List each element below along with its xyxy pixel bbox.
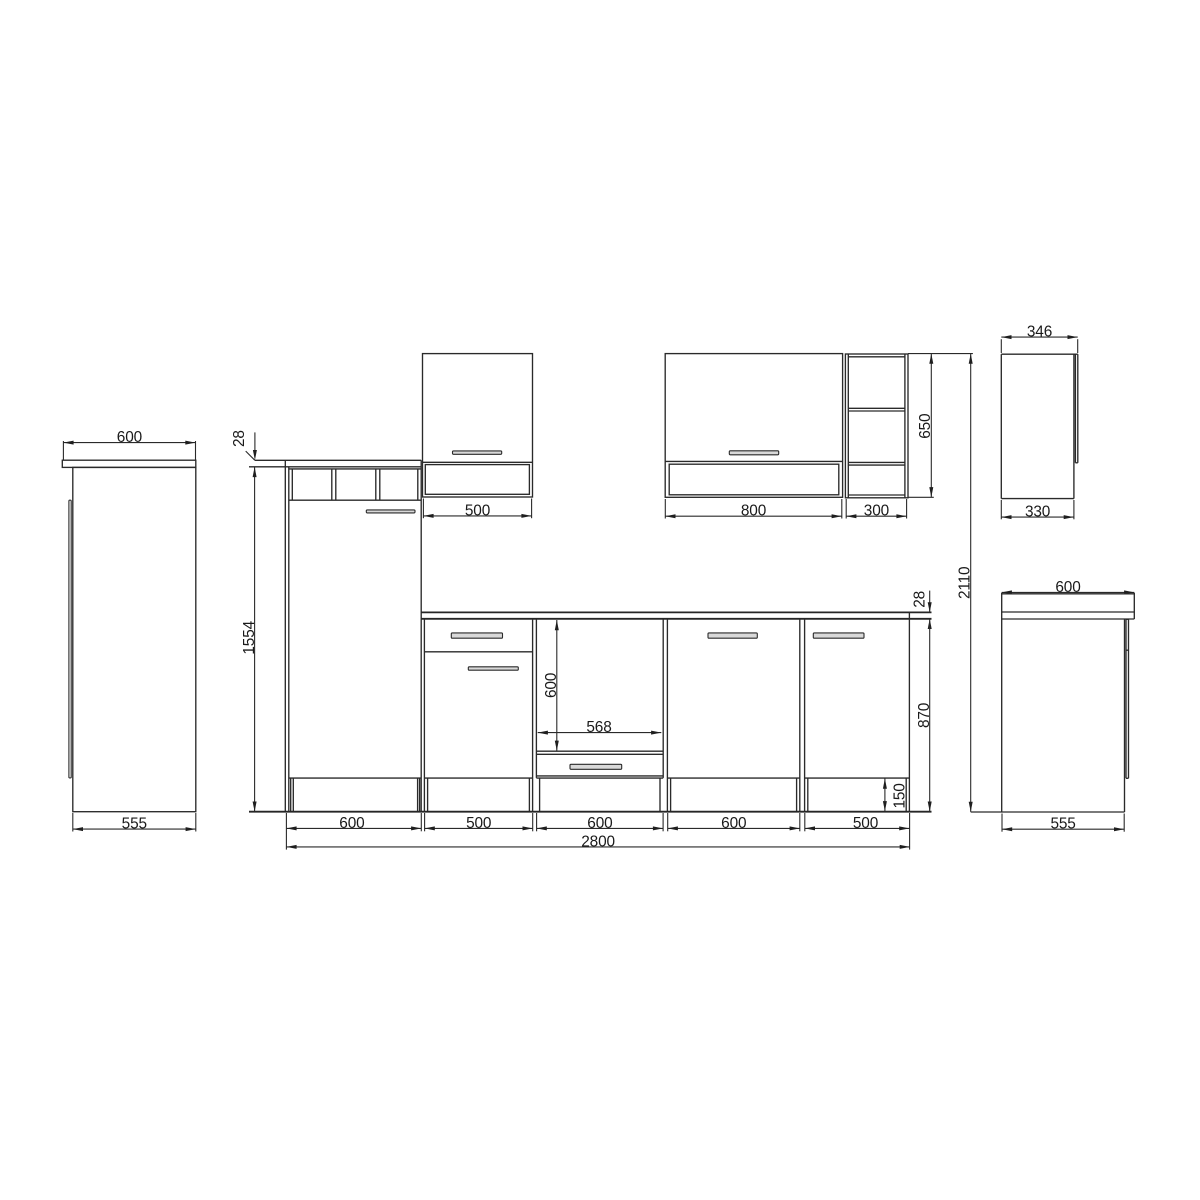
svg-text:568: 568 bbox=[586, 719, 611, 736]
svg-text:1554: 1554 bbox=[241, 620, 258, 654]
svg-text:2800: 2800 bbox=[581, 833, 615, 850]
svg-text:300: 300 bbox=[864, 503, 889, 520]
svg-text:346: 346 bbox=[1027, 324, 1052, 341]
svg-text:500: 500 bbox=[465, 502, 490, 519]
svg-text:870: 870 bbox=[916, 703, 933, 728]
svg-text:28: 28 bbox=[911, 591, 928, 608]
svg-text:330: 330 bbox=[1025, 504, 1050, 521]
svg-text:650: 650 bbox=[917, 414, 934, 439]
svg-text:600: 600 bbox=[721, 815, 746, 832]
svg-text:2110: 2110 bbox=[956, 567, 973, 600]
svg-text:600: 600 bbox=[543, 673, 560, 698]
svg-text:555: 555 bbox=[1050, 816, 1075, 833]
svg-text:500: 500 bbox=[853, 815, 878, 832]
svg-text:500: 500 bbox=[466, 815, 491, 832]
svg-text:150: 150 bbox=[891, 783, 908, 808]
svg-text:28: 28 bbox=[231, 430, 248, 447]
svg-text:600: 600 bbox=[587, 815, 612, 832]
svg-text:600: 600 bbox=[117, 429, 142, 446]
svg-text:800: 800 bbox=[741, 503, 766, 520]
svg-text:600: 600 bbox=[339, 815, 364, 832]
svg-text:555: 555 bbox=[122, 816, 147, 833]
